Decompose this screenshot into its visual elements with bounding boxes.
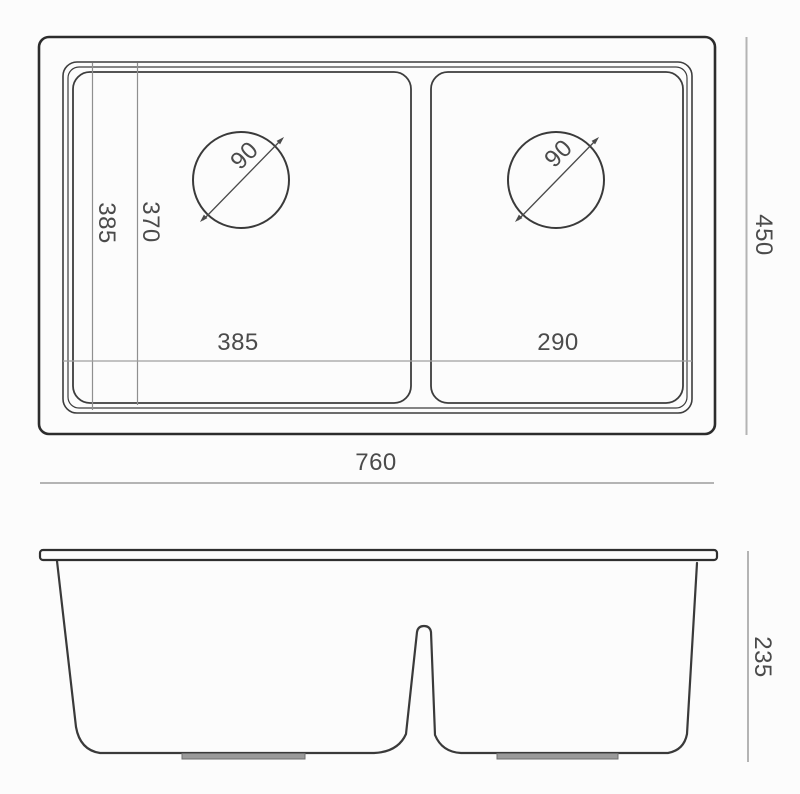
drawing-canvas (0, 0, 800, 794)
dim-label-right-bowl-width: 290 (537, 331, 579, 355)
side-view-rim-slab (40, 550, 717, 560)
left-bowl-drain-pad (182, 754, 305, 760)
dim-label-left-bowl-inner-depth: 370 (138, 201, 162, 243)
dim-label-left-bowl-front-depth: 385 (94, 202, 118, 244)
top-view-lines (39, 37, 747, 483)
dim-label-overall-depth: 450 (751, 214, 775, 256)
dim-label-bowl-height: 235 (750, 636, 774, 678)
right-bowl-drain-pad (497, 754, 618, 760)
sink-technical-drawing: 760 450 385 370 385 290 90 90 235 (0, 0, 800, 794)
side-view-body-outline (57, 561, 697, 753)
dim-label-left-bowl-width: 385 (217, 331, 259, 355)
side-view-lines (40, 550, 748, 762)
dim-label-overall-width: 760 (355, 451, 397, 475)
